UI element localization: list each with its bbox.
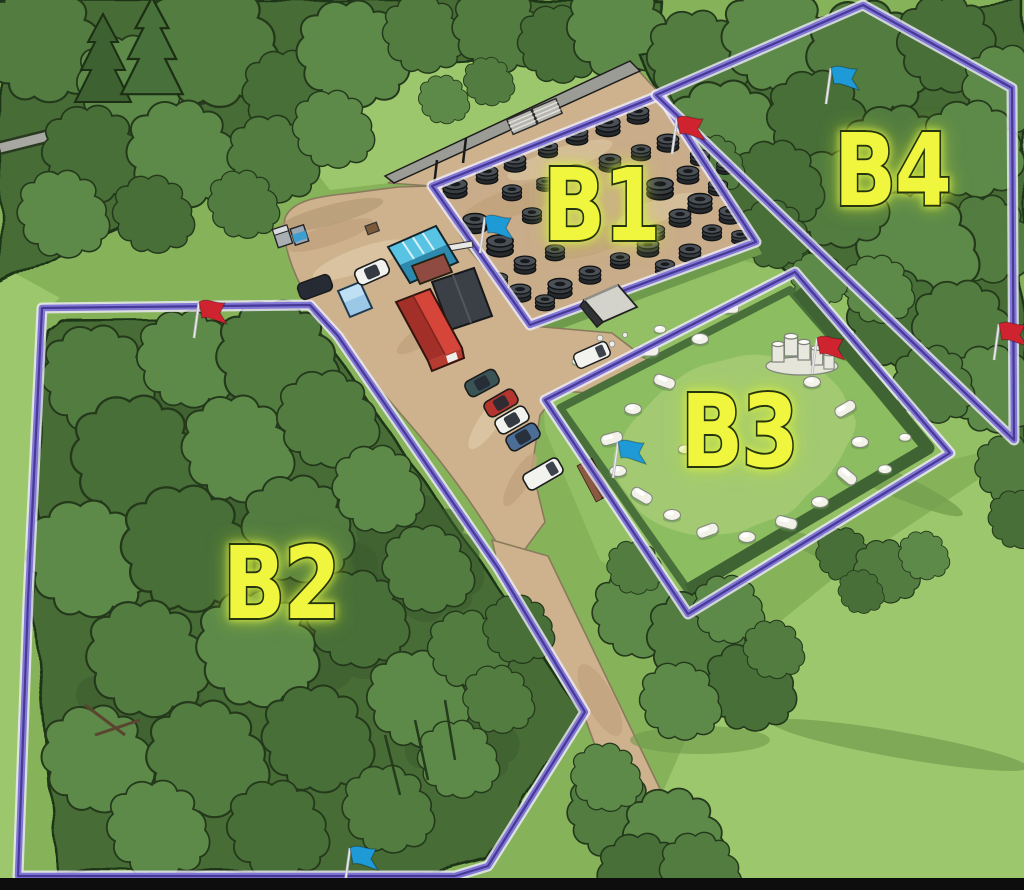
paintball-map: B1 B2 B3 B4	[0, 0, 1024, 890]
zone-label-b2: B2	[223, 525, 339, 642]
map-canvas: B1 B2 B3 B4	[0, 0, 1024, 890]
zone-label-b1: B1	[543, 147, 659, 264]
black-bar	[0, 878, 1024, 890]
zone-label-b3: B3	[681, 373, 797, 490]
zone-label-b4: B4	[834, 112, 950, 229]
